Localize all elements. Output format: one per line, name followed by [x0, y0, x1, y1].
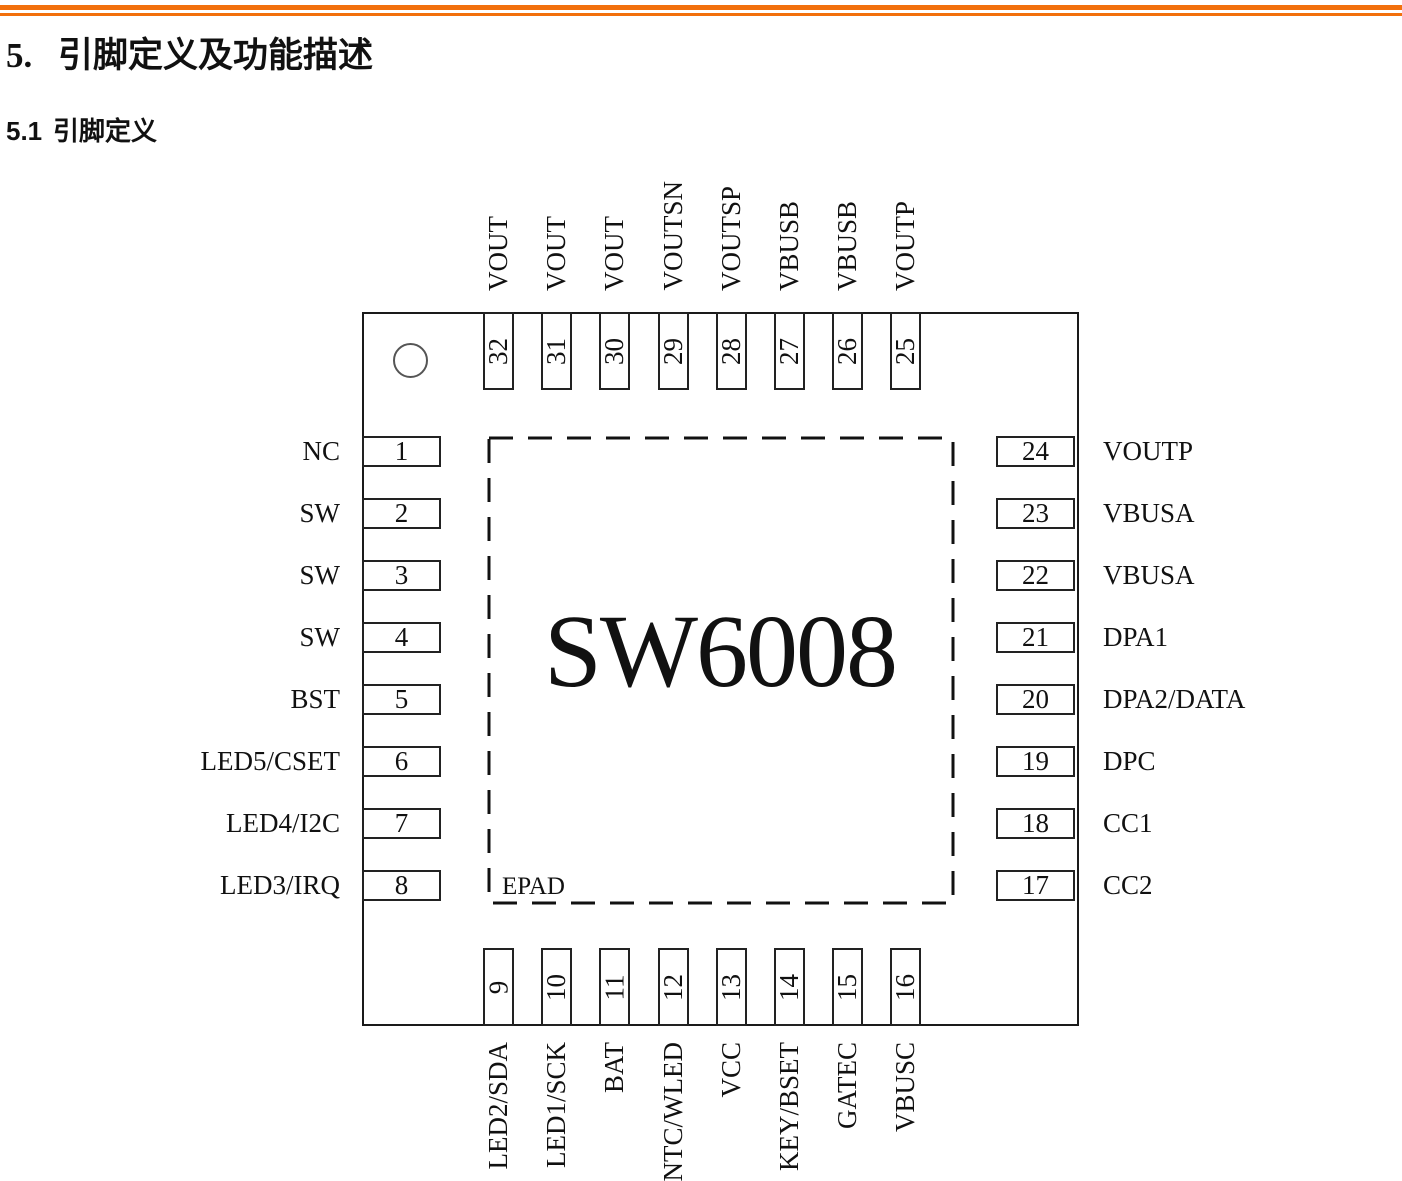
pin-label-18: CC1	[1103, 808, 1153, 839]
pin-number-21: 21	[1022, 622, 1049, 653]
pin-number-1: 1	[395, 436, 409, 467]
section-heading: 5.引脚定义及功能描述	[6, 34, 373, 78]
pin-number-8: 8	[395, 870, 409, 901]
pin-box-25: 25	[890, 312, 921, 390]
pin-box-23: 23	[996, 498, 1075, 529]
pin-number-12: 12	[658, 974, 689, 1001]
subsection-number: 5.1	[6, 114, 53, 148]
subsection-heading: 5.1引脚定义	[6, 114, 157, 148]
pin-box-11: 11	[599, 948, 630, 1026]
pin-number-30: 30	[599, 338, 630, 365]
pin1-indicator-circle	[393, 343, 428, 378]
pin-number-23: 23	[1022, 498, 1049, 529]
pin-box-5: 5	[362, 684, 441, 715]
pin-label-22: VBUSA	[1103, 560, 1195, 591]
pin-label-27: VBUSB	[774, 201, 805, 291]
pin-box-32: 32	[483, 312, 514, 390]
pin-number-32: 32	[483, 338, 514, 365]
pin-label-25: VOUTP	[890, 201, 921, 291]
pin-box-13: 13	[716, 948, 747, 1026]
pin-number-28: 28	[716, 338, 747, 365]
pin-box-30: 30	[599, 312, 630, 390]
pin-label-8: LED3/IRQ	[220, 870, 340, 901]
pin-number-5: 5	[395, 684, 409, 715]
header-rule-thick	[0, 5, 1402, 10]
pin-box-24: 24	[996, 436, 1075, 467]
pin-number-6: 6	[395, 746, 409, 777]
section-title: 引脚定义及功能描述	[58, 36, 373, 75]
pin-box-18: 18	[996, 808, 1075, 839]
pin-box-19: 19	[996, 746, 1075, 777]
pin-label-14: KEY/BSET	[774, 1042, 805, 1171]
epad-label: EPAD	[502, 874, 565, 899]
section-number: 5.	[6, 34, 58, 78]
pin-box-8: 8	[362, 870, 441, 901]
pin-label-6: LED5/CSET	[201, 746, 341, 777]
pin-label-2: SW	[300, 498, 341, 529]
pin-number-17: 17	[1022, 870, 1049, 901]
pin-box-28: 28	[716, 312, 747, 390]
pin-box-21: 21	[996, 622, 1075, 653]
pin-number-13: 13	[716, 974, 747, 1001]
pin-label-29: VOUTSN	[658, 181, 689, 291]
pin-label-28: VOUTSP	[716, 186, 747, 291]
pin-box-15: 15	[832, 948, 863, 1026]
pin-number-10: 10	[541, 974, 572, 1001]
pin-box-31: 31	[541, 312, 572, 390]
pin-label-7: LED4/I2C	[226, 808, 340, 839]
pin-label-13: VCC	[716, 1042, 747, 1098]
pin-box-12: 12	[658, 948, 689, 1026]
pin-number-4: 4	[395, 622, 409, 653]
pin-number-7: 7	[395, 808, 409, 839]
pin-label-11: BAT	[599, 1042, 630, 1093]
pin-box-1: 1	[362, 436, 441, 467]
pin-label-19: DPC	[1103, 746, 1156, 777]
pin-box-2: 2	[362, 498, 441, 529]
pin-label-9: LED2/SDA	[483, 1042, 514, 1170]
pin-number-2: 2	[395, 498, 409, 529]
pin-label-12: NTC/WLED	[658, 1042, 689, 1181]
pin-number-22: 22	[1022, 560, 1049, 591]
pin-label-16: VBUSC	[890, 1042, 921, 1132]
pin-number-24: 24	[1022, 436, 1049, 467]
pin-box-6: 6	[362, 746, 441, 777]
pin-number-15: 15	[832, 974, 863, 1001]
pin-number-16: 16	[890, 974, 921, 1001]
pin-label-4: SW	[300, 622, 341, 653]
pin-box-17: 17	[996, 870, 1075, 901]
pin-box-3: 3	[362, 560, 441, 591]
pin-label-3: SW	[300, 560, 341, 591]
pin-label-26: VBUSB	[832, 201, 863, 291]
pin-box-26: 26	[832, 312, 863, 390]
pin-box-7: 7	[362, 808, 441, 839]
pin-number-18: 18	[1022, 808, 1049, 839]
pin-box-27: 27	[774, 312, 805, 390]
pin-label-24: VOUTP	[1103, 436, 1193, 467]
pin-box-9: 9	[483, 948, 514, 1026]
pin-number-31: 31	[541, 338, 572, 365]
pin-number-25: 25	[890, 338, 921, 365]
pin-box-20: 20	[996, 684, 1075, 715]
pin-number-3: 3	[395, 560, 409, 591]
pin-number-14: 14	[774, 974, 805, 1001]
pin-label-21: DPA1	[1103, 622, 1168, 653]
pin-label-10: LED1/SCK	[541, 1042, 572, 1168]
pin-label-30: VOUT	[599, 216, 630, 291]
pin-box-29: 29	[658, 312, 689, 390]
pin-box-16: 16	[890, 948, 921, 1026]
pin-number-19: 19	[1022, 746, 1049, 777]
pin-label-5: BST	[290, 684, 340, 715]
pin-label-1: NC	[302, 436, 340, 467]
pin-number-27: 27	[774, 338, 805, 365]
header-rule-thin	[0, 13, 1402, 16]
pin-number-29: 29	[658, 338, 689, 365]
pin-box-22: 22	[996, 560, 1075, 591]
chip-name: SW6008	[487, 600, 953, 704]
pin-box-4: 4	[362, 622, 441, 653]
pin-label-20: DPA2/DATA	[1103, 684, 1245, 715]
pin-number-20: 20	[1022, 684, 1049, 715]
pin-label-31: VOUT	[541, 216, 572, 291]
pin-label-23: VBUSA	[1103, 498, 1195, 529]
pin-label-15: GATEC	[832, 1042, 863, 1129]
pin-label-32: VOUT	[483, 216, 514, 291]
subsection-title: 引脚定义	[53, 116, 157, 146]
datasheet-page: 5.引脚定义及功能描述 5.1引脚定义 SW6008 EPAD 32 31 30…	[0, 0, 1402, 1181]
pin-box-14: 14	[774, 948, 805, 1026]
pin-box-10: 10	[541, 948, 572, 1026]
pin-label-17: CC2	[1103, 870, 1153, 901]
pin-number-9: 9	[483, 980, 514, 994]
pin-number-11: 11	[599, 974, 630, 1000]
pin-number-26: 26	[832, 338, 863, 365]
